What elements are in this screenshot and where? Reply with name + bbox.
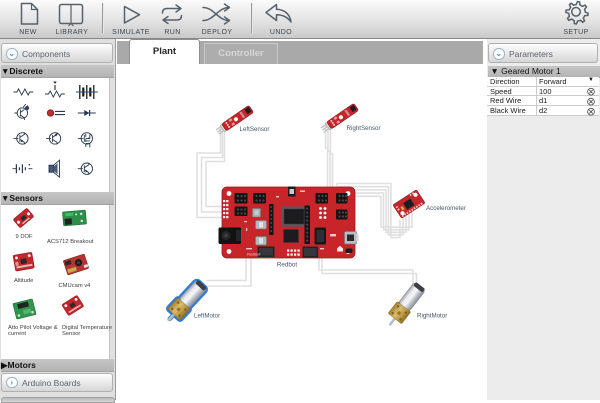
svg-text:RedBot: RedBot [247, 252, 261, 257]
svg-text:RightMotor: RightMotor [417, 313, 447, 320]
svg-text:LeftSensor: LeftSensor [240, 126, 270, 133]
svg-text:Accelerometer: Accelerometer [426, 205, 466, 212]
svg-text:Redbot: Redbot [277, 262, 298, 269]
svg-text:RightSensor: RightSensor [347, 125, 381, 132]
svg-text:LeftMotor: LeftMotor [194, 313, 220, 320]
